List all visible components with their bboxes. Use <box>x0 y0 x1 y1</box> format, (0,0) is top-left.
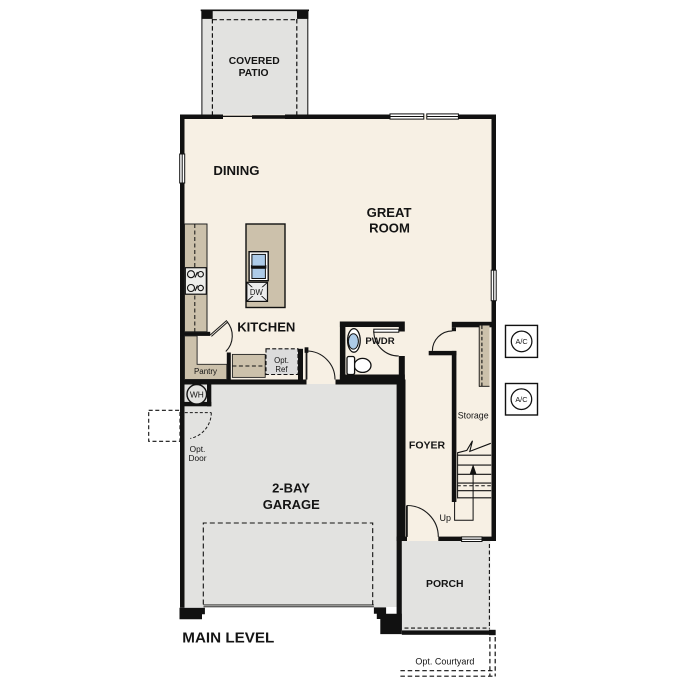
svg-text:WH: WH <box>190 389 204 399</box>
svg-text:COVERED: COVERED <box>229 56 280 67</box>
svg-text:Opt.: Opt. <box>274 356 289 365</box>
svg-text:GREAT: GREAT <box>367 205 412 220</box>
svg-text:PWDR: PWDR <box>365 336 394 347</box>
svg-text:PORCH: PORCH <box>426 579 464 590</box>
svg-text:ROOM: ROOM <box>369 221 410 236</box>
svg-text:FOYER: FOYER <box>409 439 446 451</box>
svg-text:Ref: Ref <box>275 365 288 374</box>
svg-text:GARAGE: GARAGE <box>263 497 320 512</box>
svg-text:A/C: A/C <box>515 395 527 404</box>
svg-text:MAIN LEVEL: MAIN LEVEL <box>182 629 274 646</box>
svg-text:DINING: DINING <box>213 163 259 178</box>
svg-text:Storage: Storage <box>458 410 489 420</box>
svg-text:2-BAY: 2-BAY <box>272 480 310 495</box>
svg-text:Pantry: Pantry <box>194 367 217 376</box>
svg-text:A/C: A/C <box>516 337 528 346</box>
svg-text:PATIO: PATIO <box>239 68 269 79</box>
svg-text:Opt. Courtyard: Opt. Courtyard <box>415 657 474 667</box>
svg-text:Up: Up <box>440 513 452 523</box>
svg-text:DW: DW <box>250 288 264 297</box>
svg-text:Door: Door <box>189 453 207 463</box>
svg-text:KITCHEN: KITCHEN <box>237 320 295 335</box>
